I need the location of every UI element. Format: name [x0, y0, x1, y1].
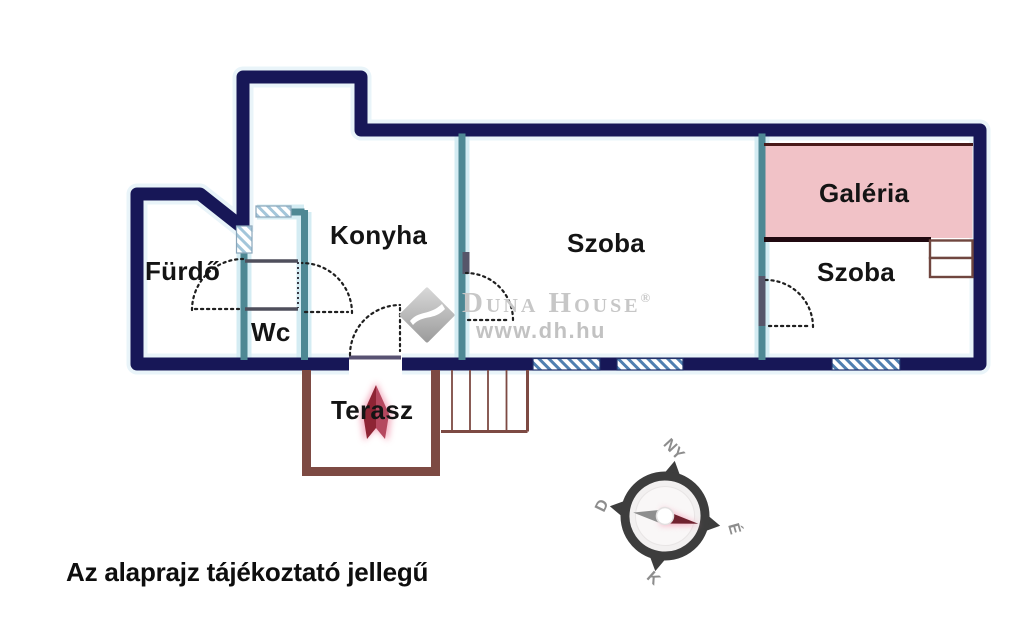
room-label-wc: Wc: [251, 319, 291, 345]
interior-walls: [244, 134, 762, 361]
stairs: [441, 370, 528, 432]
wc-partition: [245, 261, 298, 309]
compass-rose-icon: [600, 451, 730, 581]
floorplan-drawing: [0, 0, 1024, 623]
room-label-szoba-center: Szoba: [567, 230, 645, 256]
room-label-terasz: Terasz: [331, 397, 413, 423]
inner-wall-glow: [244, 134, 762, 360]
room-label-szoba-right: Szoba: [817, 259, 895, 285]
floorplan-page: Fürdő Wc Konyha Szoba Galéria Szoba Tera…: [0, 0, 1024, 623]
room-label-galeria: Galéria: [819, 180, 909, 206]
room-label-konyha: Konyha: [330, 222, 427, 248]
disclaimer-text: Az alaprajz tájékoztató jellegű: [66, 557, 428, 588]
room-label-furdo: Fürdő: [145, 258, 220, 284]
